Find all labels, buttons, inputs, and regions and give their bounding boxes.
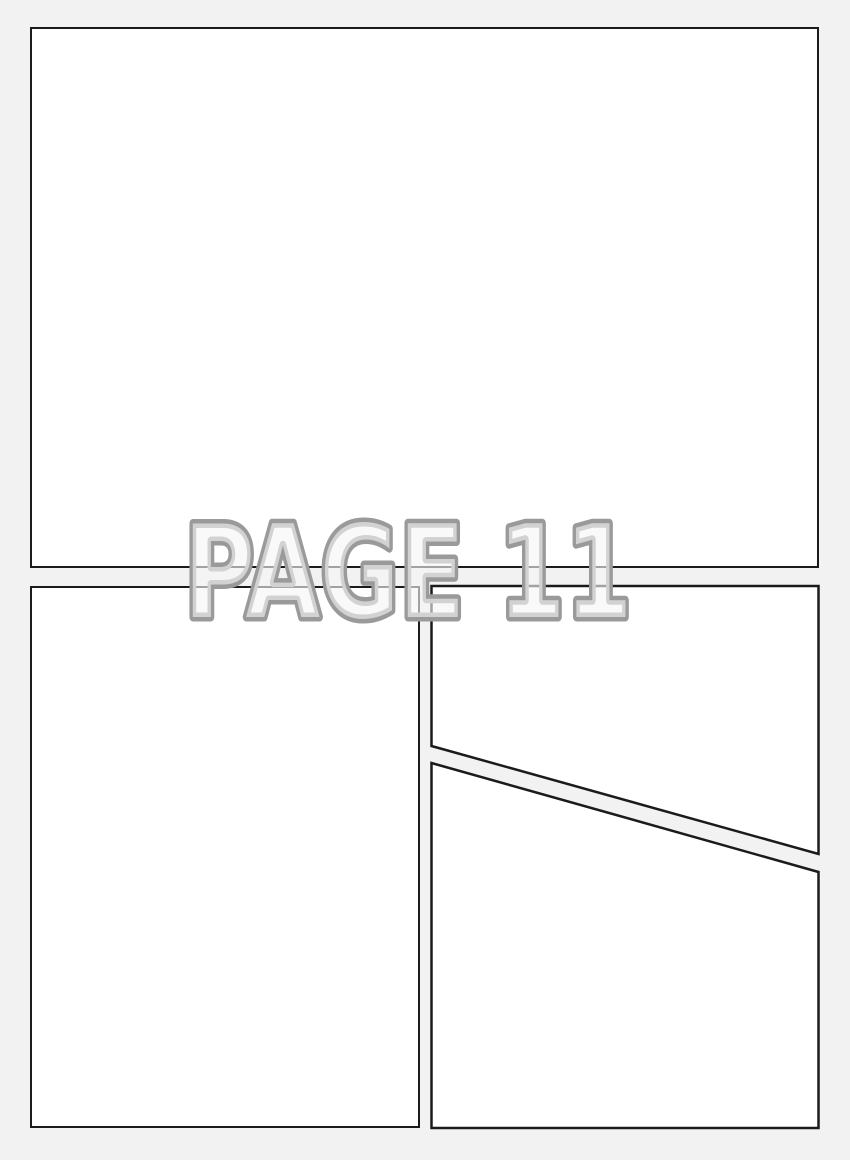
bottom-right-panel-group bbox=[430, 584, 820, 1130]
comic-page-template: PAGE 11 bbox=[0, 0, 850, 1160]
page-label-layer: PAGE 11 bbox=[0, 505, 850, 650]
page-label: PAGE 11 bbox=[184, 505, 632, 648]
comic-panel-2 bbox=[30, 586, 420, 1128]
comic-panel-1 bbox=[30, 27, 819, 568]
